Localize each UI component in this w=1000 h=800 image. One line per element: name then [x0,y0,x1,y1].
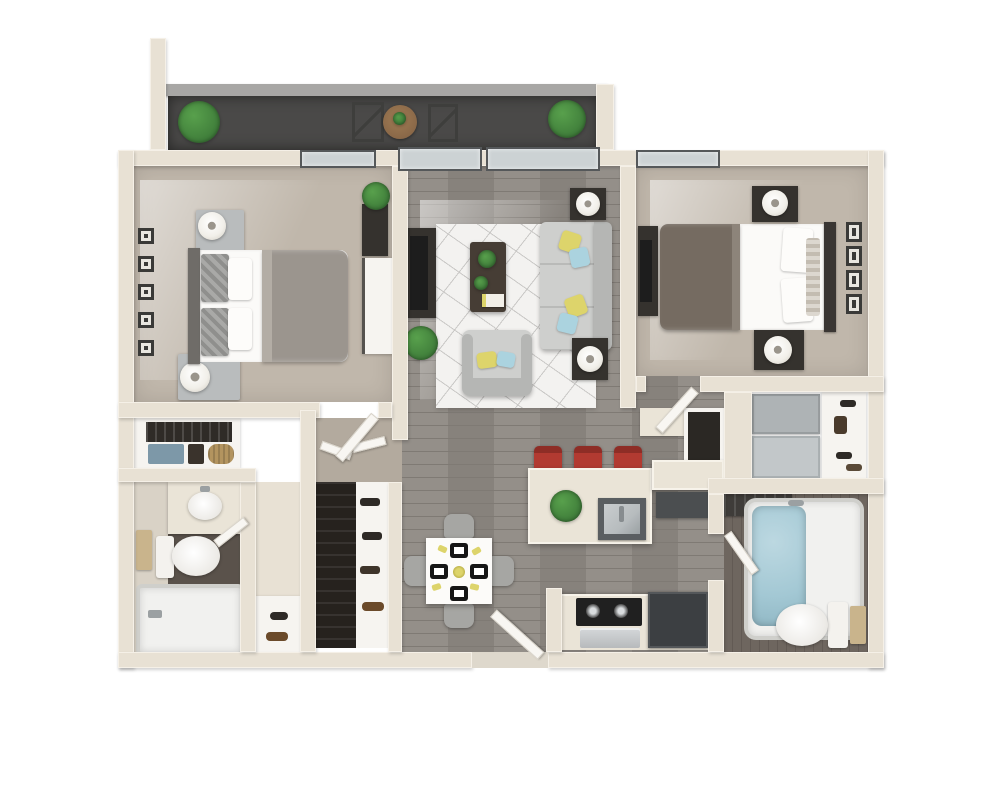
kitchen-refrigerator [648,592,708,648]
wall-balcony-right [596,84,614,150]
place-setting [470,564,488,579]
balcony-plant-right-icon [548,100,586,138]
wall-stub-top-left [150,38,166,150]
wardrobe-hanging-clothes [316,482,356,648]
wall-kitchen-stub [546,588,562,652]
wall-bedroom2-bottom-stub [636,376,646,392]
bedroom1-pillow-white [228,308,252,350]
wall-bathroom1-right [240,482,256,652]
bedroom1-pillow-white [228,258,252,300]
living-plant-icon [404,326,438,360]
bedroom1-frame-icon [138,256,154,272]
bedroom1-pillow [201,254,229,302]
linen-closet-rod [146,422,232,442]
living-armchair-arm [521,334,532,386]
bedroom1-frame-icon [138,340,154,356]
bathroom1-shower-fixture-icon [148,610,162,618]
cooktop-burner-icon [586,604,600,618]
kitchen-appliance-cabinet [656,492,714,518]
coffee-table-book [482,294,504,307]
wall-bedroom1-living [392,166,408,440]
dining-chair [490,556,514,586]
closet-void [256,482,300,596]
bedroom1-duvet-fold [262,250,272,362]
bedroom2-frame-icon [846,222,862,242]
wall-closet-left [300,410,316,652]
wall-linen-divider [118,468,256,482]
bedroom1-frame-icon [138,284,154,300]
bedroom1-plant-icon [362,182,390,210]
end-table-lamp-icon [577,346,603,372]
dining-chair [404,556,428,586]
wall-bathroom2-left-upper [708,494,724,534]
balcony-sliding-door-left [398,147,482,171]
laundry-sliding-door [752,436,820,478]
armchair-pillow-blue [496,351,516,369]
end-table-lamp-icon [576,192,600,216]
bathroom2-toilet-tank [828,602,848,648]
dining-chair [444,604,474,628]
coffee-table-plant-icon [474,276,488,290]
bedroom1-pillow [201,308,229,356]
bedroom2-headboard [824,222,836,332]
bedroom1-window [300,150,376,168]
armchair-pillow-yellow [476,351,498,370]
bedroom1-duvet [262,250,348,362]
bedroom2-lamp-top-icon [762,190,788,216]
balcony-chair-icon [352,102,384,142]
bedroom1-lamp-bottom-icon [180,362,210,392]
kitchen-island-plant-icon [550,490,582,522]
bedroom2-frame-icon [846,246,862,266]
linen-closet-towels-blue [148,444,184,464]
linen-closet-basket [208,444,234,464]
bedroom1-frame-icon [138,312,154,328]
bathroom1-shower-tub [136,584,244,656]
bedroom2-tv-icon [640,240,652,302]
wall-outer-right [868,150,884,668]
living-sofa-back [594,222,612,350]
bedroom1-dresser [362,258,393,354]
bedroom2-lamp-bottom-icon [764,336,792,364]
balcony-chair-icon [428,104,458,142]
wall-outer-bottom-left [118,652,472,668]
bedroom2-frame-icon [846,270,862,290]
laundry-sliding-door [752,394,820,434]
bedroom2-duvet-fold [732,224,740,330]
bedroom2-throw-patterned [806,238,820,316]
bench-shoe-icon [270,612,288,620]
bedroom2-duvet [660,224,740,330]
bathroom2-toilet-bowl [776,604,828,646]
wall-closet-right [388,482,402,652]
wall-outer-bottom-right [548,652,884,668]
balcony-railing [160,84,608,96]
kitchen-oven [580,628,640,648]
bathroom1-toilet-bowl [172,536,220,576]
wardrobe-shoe-icon [362,532,382,540]
bathroom2-faucet-icon [788,500,804,506]
closet-shoes-icon [846,464,862,471]
wall-bedroom1-bottom [118,402,320,418]
linen-closet-dark-item [188,444,204,464]
bathroom1-faucet-icon [200,486,210,492]
bathroom1-towel-bar [136,530,152,570]
place-setting [430,564,448,579]
place-setting [450,543,468,558]
bedroom1-headboard [188,248,200,364]
bathroom2-towel [850,606,866,644]
coffee-table-plant-icon [478,250,496,268]
bedroom2-window [636,150,720,168]
bedroom1-tv-unit [362,204,388,256]
balcony-plant-left-icon [178,101,220,143]
wall-closet-block [724,392,752,480]
place-setting [450,586,468,601]
closet-handbag-icon [834,416,847,434]
wall-bathroom2-left-lower [708,580,724,652]
wall-bedroom1-bottom-stub [378,402,392,418]
balcony-table-plant-icon [393,112,406,125]
bedroom1-lamp-top-icon [198,212,226,240]
bedroom1-frame-icon [138,228,154,244]
balcony-sliding-door-right [486,147,600,171]
floor-plan-canvas [0,0,1000,800]
entry-bench [256,596,300,652]
wall-bedroom2-bottom [700,376,884,392]
wardrobe-shoe-icon [360,566,380,574]
sofa-pillow-blue [568,246,591,269]
closet-shoes-icon [836,452,852,459]
wall-living-bedroom2 [620,166,636,408]
living-tv-icon [410,236,428,310]
closet-shoes-icon [840,400,856,407]
living-armchair-arm [462,334,473,386]
wall-bathroom2-top [708,478,884,494]
wardrobe-shoe-icon [360,498,380,506]
cooktop-burner-icon [614,604,628,618]
bedroom2-frame-icon [846,294,862,314]
bench-shoe-icon [266,632,288,641]
dining-centerpiece [453,566,465,578]
bathroom1-sink [188,492,222,520]
kitchen-faucet-icon [619,506,624,522]
dining-chair [444,514,474,538]
wardrobe-shoe-icon [362,602,384,611]
